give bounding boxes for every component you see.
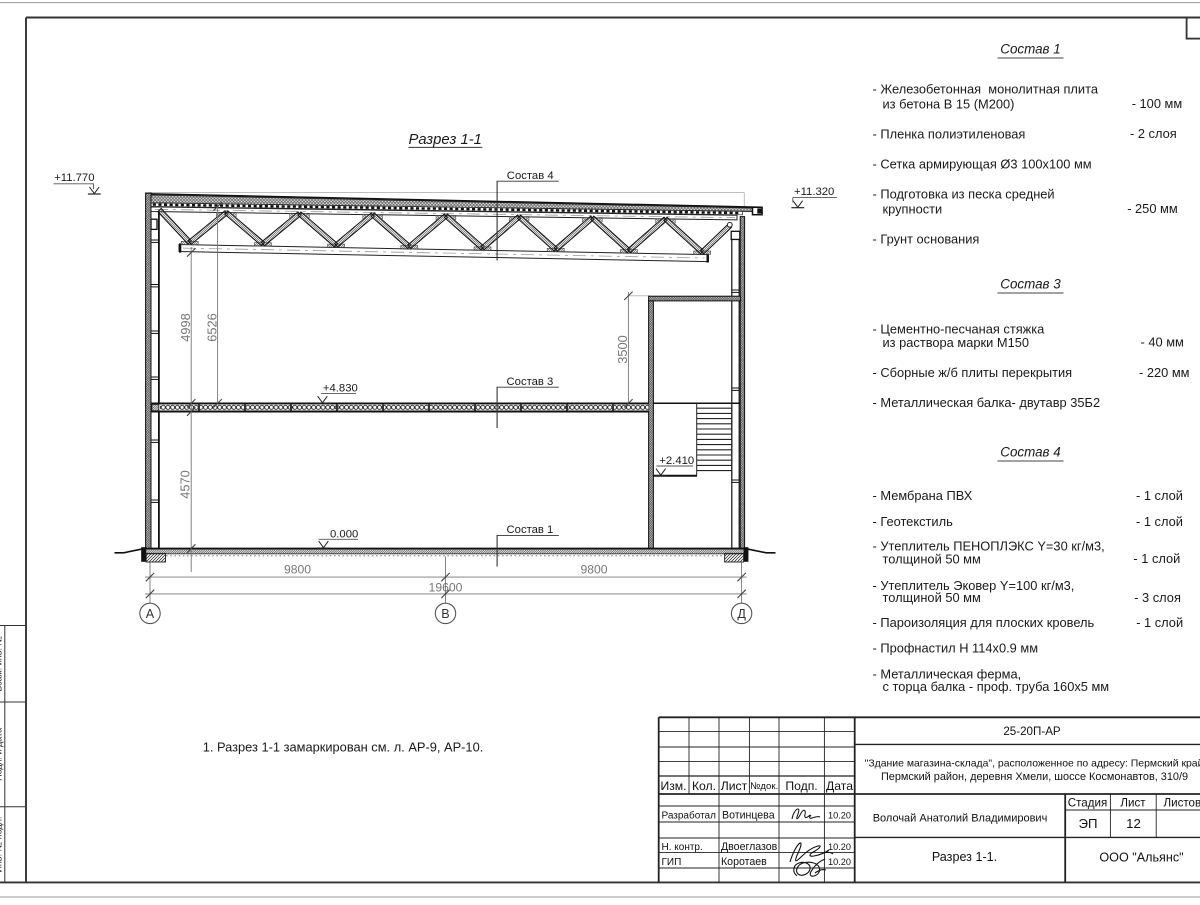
svg-text:+11.770: +11.770 — [54, 172, 94, 184]
svg-text:10.20: 10.20 — [828, 810, 851, 820]
svg-text:3500: 3500 — [615, 335, 630, 363]
svg-text:Разработал: Разработал — [662, 809, 717, 821]
svg-text:4998: 4998 — [178, 313, 193, 341]
svg-text:из бетона В 15 (М200): из бетона В 15 (М200) — [883, 96, 1015, 111]
svg-text:Состав 1: Состав 1 — [1000, 42, 1060, 57]
svg-text:- Железобетонная монолитная п: - Железобетонная монолитная плита — [873, 81, 1099, 96]
svg-text:- Грунт основания: - Грунт основания — [873, 232, 980, 247]
svg-text:- Металлическая балка- двутавр: - Металлическая балка- двутавр 35Б2 — [873, 395, 1101, 410]
svg-text:Изм.: Изм. — [660, 779, 686, 793]
svg-text:6526: 6526 — [204, 313, 219, 341]
svg-text:В: В — [441, 607, 449, 621]
svg-text:Двоеглазов: Двоеглазов — [721, 841, 778, 853]
svg-text:Состав 1: Состав 1 — [507, 524, 554, 536]
svg-text:- 1 слой: - 1 слой — [1133, 551, 1180, 566]
svg-text:- 100 мм: - 100 мм — [1132, 96, 1183, 111]
svg-text:ЭП: ЭП — [1079, 816, 1098, 831]
svg-text:10.20: 10.20 — [828, 857, 851, 867]
svg-text:- Пленка полиэтиленовая: - Пленка полиэтиленовая — [873, 126, 1026, 141]
svg-text:толщиной 50 мм: толщиной 50 мм — [883, 552, 981, 567]
svg-text:Вотинцева: Вотинцева — [722, 810, 775, 822]
svg-text:ГИП: ГИП — [662, 857, 682, 868]
svg-text:- 40 мм: - 40 мм — [1141, 334, 1184, 349]
svg-text:№док.: №док. — [750, 781, 778, 792]
svg-text:толщиной 50 мм: толщиной 50 мм — [883, 590, 981, 605]
svg-text:А: А — [146, 607, 155, 621]
svg-text:Волочай Анатолий Владимирович: Волочай Анатолий Владимирович — [873, 813, 1048, 825]
svg-text:"Здание магазина-склада", расп: "Здание магазина-склада", расположенное … — [865, 759, 1200, 770]
svg-text:- Сетка армирующая Ø3 100х100: - Сетка армирующая Ø3 100х100 мм — [873, 157, 1092, 172]
svg-text:- 1 слой: - 1 слой — [1136, 615, 1183, 630]
svg-text:+4.830: +4.830 — [323, 383, 358, 395]
svg-text:ООО "Альянс": ООО "Альянс" — [1099, 851, 1183, 865]
svg-text:Взам. инв. №: Взам. инв. № — [0, 635, 4, 691]
svg-text:Пермский район, деревня Хмели,: Пермский район, деревня Хмели, шоссе Кос… — [881, 771, 1188, 783]
svg-text:Лист: Лист — [721, 779, 748, 793]
svg-text:- 3 слоя: - 3 слоя — [1134, 590, 1181, 605]
svg-text:Состав 3: Состав 3 — [1000, 277, 1061, 292]
svg-text:Подп. и дата: Подп. и дата — [0, 728, 4, 781]
svg-text:Н. контр.: Н. контр. — [662, 842, 703, 853]
svg-text:- Профнастил Н 114х0.9 мм: - Профнастил Н 114х0.9 мм — [873, 641, 1039, 656]
svg-text:+2.410: +2.410 — [659, 455, 694, 467]
svg-text:- 250 мм: - 250 мм — [1127, 201, 1178, 216]
svg-text:10.20: 10.20 — [828, 842, 851, 852]
svg-text:Д: Д — [737, 607, 746, 621]
svg-text:Состав 4: Состав 4 — [1000, 445, 1060, 460]
svg-text:Подп.: Подп. — [785, 779, 817, 793]
svg-text:Инв. № подл.: Инв. № подл. — [0, 817, 4, 873]
svg-text:4570: 4570 — [178, 470, 193, 498]
svg-text:9800: 9800 — [580, 563, 607, 577]
svg-text:1. Разрез 1-1 замаркирован см.: 1. Разрез 1-1 замаркирован см. л. АР-9, … — [203, 739, 484, 754]
svg-text:Разрез 1-1: Разрез 1-1 — [409, 132, 482, 148]
svg-text:Кол.: Кол. — [692, 779, 716, 793]
svg-text:0.000: 0.000 — [330, 528, 358, 540]
svg-text:- 1 слой: - 1 слой — [1136, 514, 1183, 529]
svg-text:- Пароизоляция для плоских кро: - Пароизоляция для плоских кровель — [873, 615, 1095, 630]
svg-text:Дата: Дата — [826, 779, 853, 793]
svg-text:с торца балка - проф. труба 16: с торца балка - проф. труба 160х5 мм — [883, 679, 1110, 694]
svg-text:Состав 4: Состав 4 — [507, 170, 554, 182]
svg-text:- 220 мм: - 220 мм — [1139, 365, 1190, 380]
svg-text:Коротаев: Коротаев — [721, 856, 767, 868]
svg-text:9800: 9800 — [284, 563, 311, 577]
svg-text:19600: 19600 — [429, 581, 463, 595]
svg-text:- Геотекстиль: - Геотекстиль — [873, 514, 954, 529]
svg-text:Листов: Листов — [1164, 797, 1200, 810]
svg-text:из раствора марки М150: из раствора марки М150 — [883, 335, 1030, 350]
svg-text:- Мембрана ПВХ: - Мембрана ПВХ — [873, 488, 973, 503]
svg-text:- 2 слоя: - 2 слоя — [1130, 126, 1177, 141]
svg-text:Разрез 1-1.: Разрез 1-1. — [932, 850, 997, 864]
svg-text:25-20П-АР: 25-20П-АР — [1003, 725, 1061, 738]
svg-text:- 1 слой: - 1 слой — [1136, 488, 1183, 503]
svg-text:+11.320: +11.320 — [794, 186, 834, 198]
svg-text:12: 12 — [1126, 816, 1141, 831]
svg-text:Лист: Лист — [1120, 797, 1146, 810]
svg-text:- Подготовка из песка средней: - Подготовка из песка средней — [873, 187, 1055, 202]
svg-text:крупности: крупности — [883, 202, 943, 217]
svg-text:- Сборные ж/б плиты перекрытия: - Сборные ж/б плиты перекрытия — [873, 365, 1073, 380]
svg-text:Стадия: Стадия — [1068, 797, 1108, 810]
svg-text:Состав 3: Состав 3 — [507, 376, 554, 388]
